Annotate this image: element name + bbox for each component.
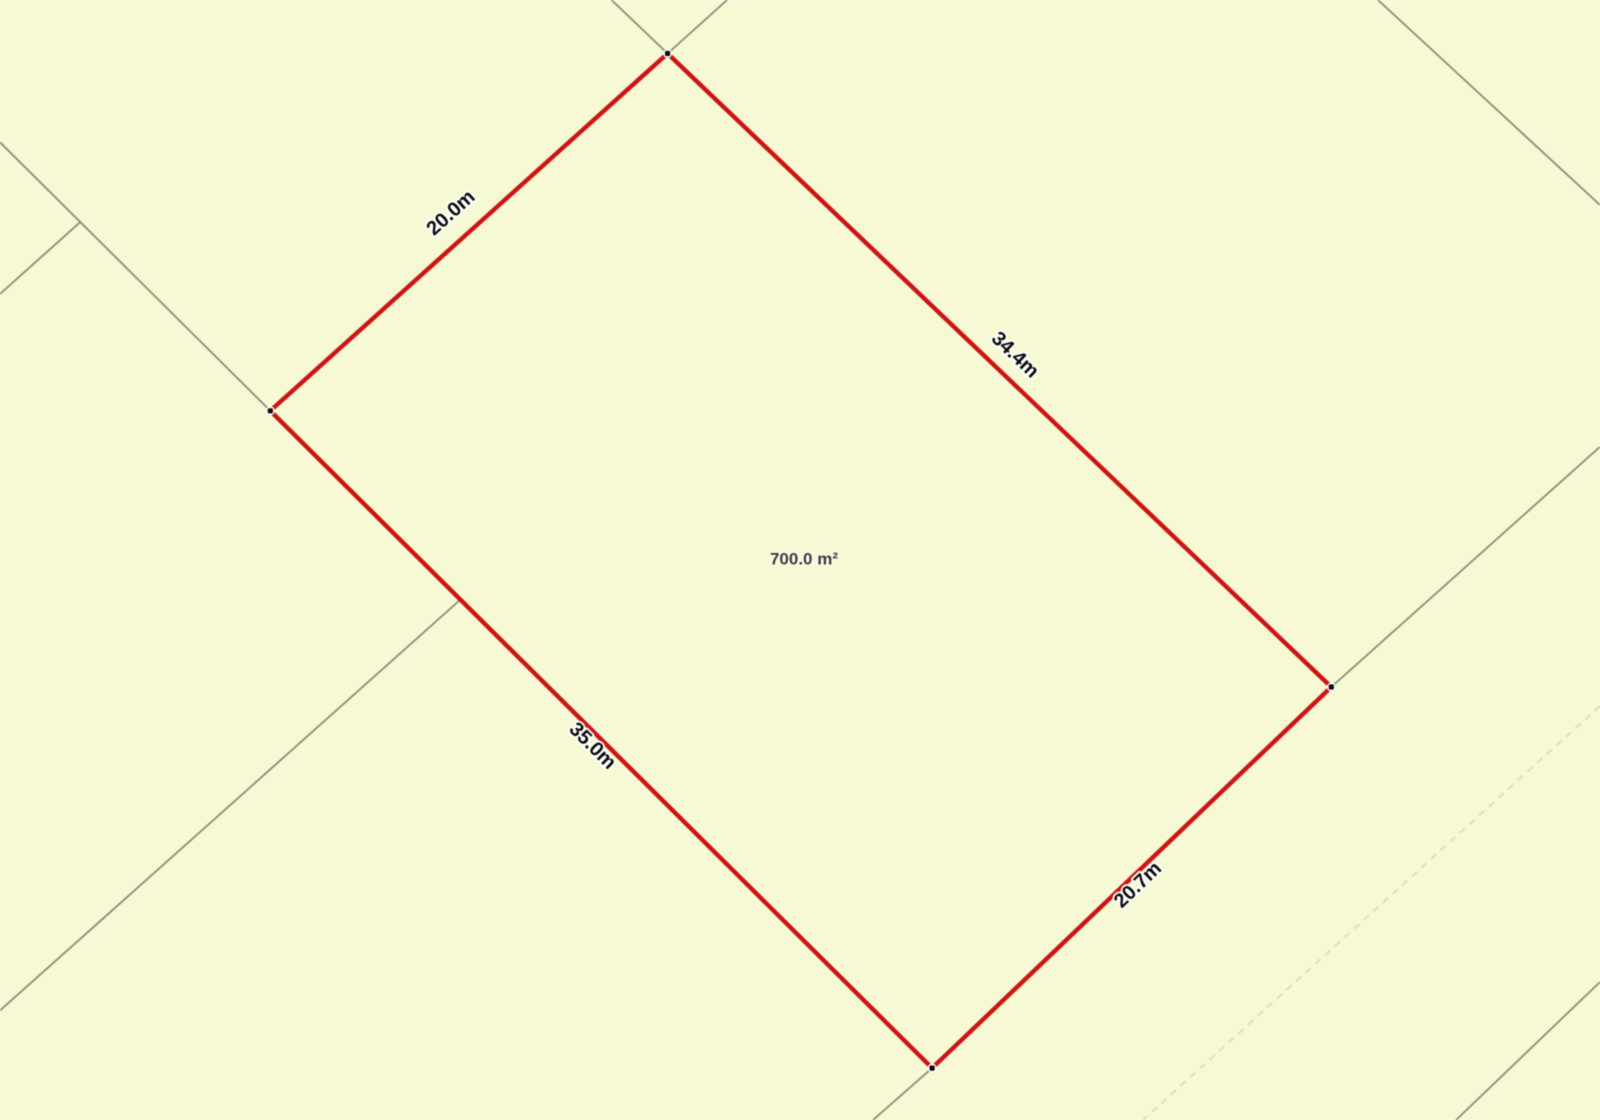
svg-text:700.0 m²: 700.0 m² <box>770 550 838 569</box>
